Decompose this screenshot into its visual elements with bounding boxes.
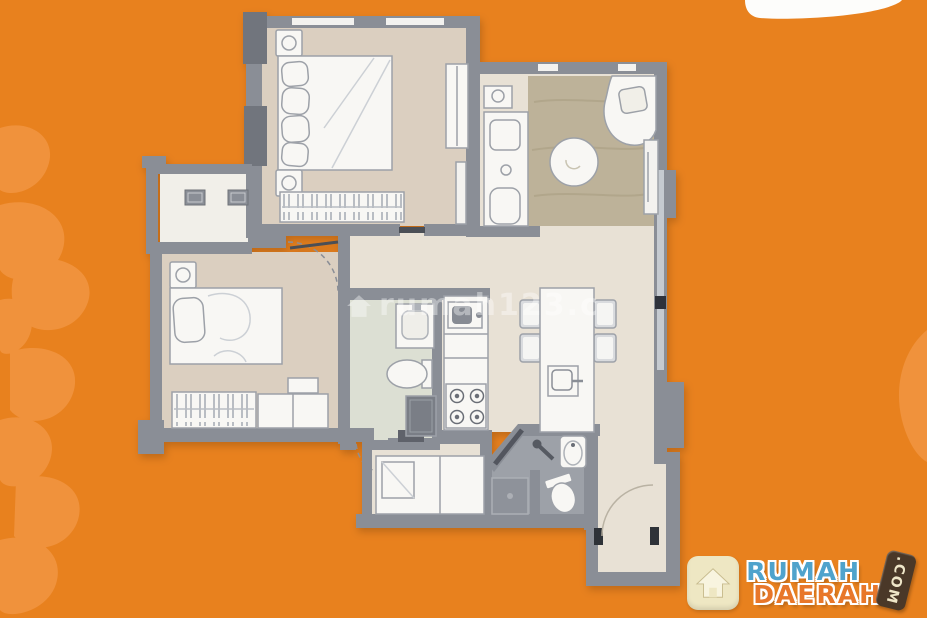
- site-logo: RUMAH DAERAH .COM: [687, 556, 911, 610]
- home-icon: [694, 564, 732, 602]
- entry-door-stop-right: [650, 527, 659, 545]
- pillow: [173, 297, 206, 343]
- hall-floor-right: [598, 432, 654, 462]
- utility-room: [376, 456, 484, 514]
- side-table: [288, 378, 318, 393]
- ledge-floor: [160, 174, 248, 242]
- curtain: [456, 162, 466, 224]
- round-table: [550, 138, 598, 186]
- hall-floor-patch: [540, 226, 654, 234]
- door-panel: [644, 140, 658, 214]
- logo-wordmark: RUMAH DAERAH: [746, 559, 882, 607]
- kitchen: [444, 296, 488, 430]
- white-swoosh: [745, 0, 902, 19]
- logo-house-tile: [687, 556, 739, 610]
- logo-title-bottom: DAERAH: [753, 582, 882, 607]
- master-door-leaf: [399, 227, 425, 233]
- nightstand: [276, 30, 302, 56]
- wall-marker: [655, 296, 666, 309]
- listing-image: rumah123.c RUMAH DAERAH .COM: [0, 0, 927, 618]
- nightstand: [170, 262, 196, 288]
- toilet: [387, 360, 427, 388]
- dining-table: [540, 288, 594, 432]
- floorplan-canvas: [0, 0, 927, 618]
- floorplan: [138, 12, 684, 586]
- hall-floor-upper: [345, 232, 655, 294]
- corridor-floor: [598, 462, 666, 574]
